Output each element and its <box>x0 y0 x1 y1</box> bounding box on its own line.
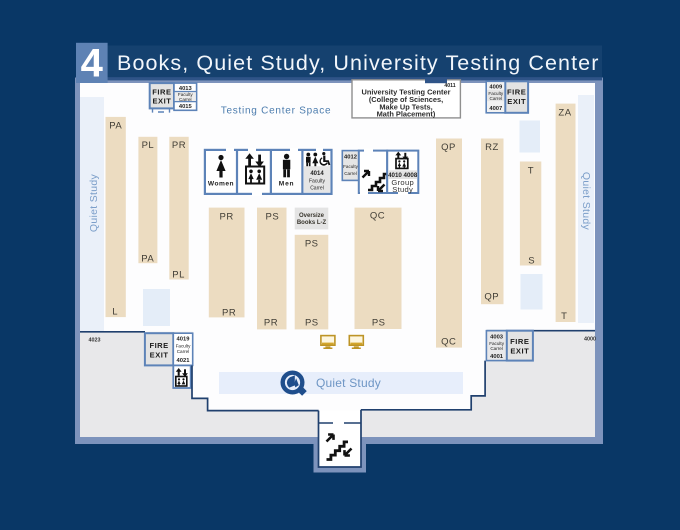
svg-text:FIRE: FIRE <box>149 341 168 350</box>
svg-text:4021: 4021 <box>177 358 191 364</box>
svg-text:Men: Men <box>279 181 295 188</box>
svg-text:Carrel: Carrel <box>344 171 357 176</box>
svg-text:PL: PL <box>142 140 155 151</box>
svg-text:Math Placement): Math Placement) <box>377 110 436 119</box>
svg-text:RZ: RZ <box>485 142 499 153</box>
svg-text:PA: PA <box>141 253 154 264</box>
svg-text:Carrel: Carrel <box>310 186 324 192</box>
svg-text:Carrel: Carrel <box>490 346 503 351</box>
svg-text:T: T <box>528 166 534 177</box>
svg-text:PA: PA <box>109 120 122 131</box>
svg-text:EXIT: EXIT <box>510 347 529 356</box>
svg-text:4012: 4012 <box>344 155 357 161</box>
svg-text:T: T <box>561 311 567 322</box>
svg-text:PS: PS <box>266 211 280 222</box>
svg-text:QC: QC <box>370 210 385 221</box>
svg-text:4014: 4014 <box>310 171 324 177</box>
svg-text:QP: QP <box>441 142 456 153</box>
svg-text:4000: 4000 <box>584 337 596 343</box>
svg-text:4001: 4001 <box>490 354 504 360</box>
svg-text:Study: Study <box>392 185 413 194</box>
svg-text:Carrel: Carrel <box>177 349 190 354</box>
svg-text:PL: PL <box>172 270 185 281</box>
svg-text:L: L <box>112 307 117 318</box>
svg-text:Faculty: Faculty <box>176 344 192 349</box>
svg-text:FIRE: FIRE <box>510 337 529 346</box>
svg-text:PS: PS <box>372 318 386 329</box>
svg-text:PR: PR <box>172 140 186 151</box>
svg-text:PR: PR <box>222 307 236 318</box>
svg-text:4019: 4019 <box>177 337 191 343</box>
svg-text:PR: PR <box>219 211 233 222</box>
svg-text:Quiet Study: Quiet Study <box>88 173 100 232</box>
svg-text:S: S <box>528 256 534 267</box>
svg-text:Quiet Study: Quiet Study <box>580 172 592 231</box>
svg-text:4009: 4009 <box>489 84 503 90</box>
svg-text:Quiet Study: Quiet Study <box>316 376 381 390</box>
svg-text:Testing Center Space: Testing Center Space <box>221 106 332 117</box>
svg-text:PS: PS <box>305 239 319 250</box>
svg-text:Books, Quiet Study, University: Books, Quiet Study, University Testing C… <box>117 51 599 75</box>
svg-text:QP: QP <box>484 292 499 303</box>
svg-text:ZA: ZA <box>558 107 571 118</box>
svg-text:Oversize: Oversize <box>299 213 325 219</box>
svg-text:Women: Women <box>208 181 234 188</box>
svg-text:4015: 4015 <box>179 104 193 110</box>
svg-text:4003: 4003 <box>490 334 504 340</box>
svg-text:4: 4 <box>81 42 104 86</box>
svg-text:4007: 4007 <box>489 106 502 112</box>
svg-text:EXIT: EXIT <box>507 97 526 106</box>
svg-text:QC: QC <box>441 336 456 347</box>
svg-text:Faculty: Faculty <box>343 164 359 169</box>
svg-text:PS: PS <box>305 318 319 329</box>
svg-text:Books L-Z: Books L-Z <box>297 220 327 226</box>
svg-text:Faculty: Faculty <box>309 179 326 185</box>
svg-text:EXIT: EXIT <box>152 97 171 106</box>
svg-text:4023: 4023 <box>89 338 101 344</box>
svg-text:FIRE: FIRE <box>152 88 171 97</box>
svg-text:Carrel: Carrel <box>490 96 503 101</box>
svg-text:FIRE: FIRE <box>507 88 526 97</box>
svg-text:EXIT: EXIT <box>150 351 169 360</box>
svg-text:PR: PR <box>264 318 278 329</box>
